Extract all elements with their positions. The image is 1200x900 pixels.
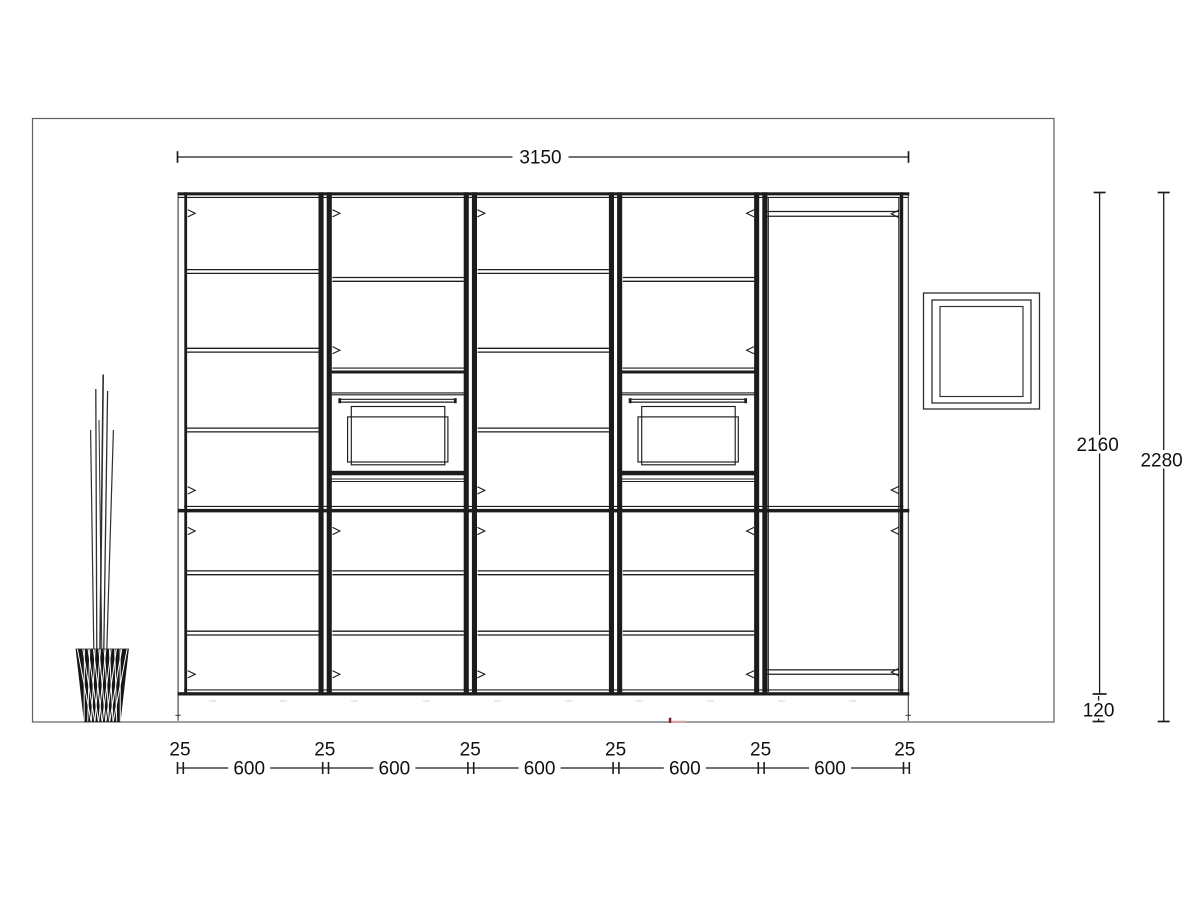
svg-text:600: 600: [669, 759, 701, 780]
svg-text:25: 25: [460, 740, 481, 761]
svg-text:25: 25: [169, 740, 190, 761]
svg-text:3150: 3150: [519, 148, 561, 169]
svg-text:2280: 2280: [1140, 450, 1182, 471]
svg-text:25: 25: [314, 740, 335, 761]
svg-text:25: 25: [894, 740, 915, 761]
svg-text:600: 600: [233, 759, 265, 780]
svg-text:600: 600: [814, 759, 846, 780]
svg-text:600: 600: [524, 759, 556, 780]
svg-text:2160: 2160: [1077, 435, 1119, 456]
svg-text:25: 25: [605, 740, 626, 761]
svg-text:120: 120: [1083, 700, 1115, 721]
svg-text:25: 25: [750, 740, 771, 761]
svg-text:600: 600: [379, 759, 411, 780]
